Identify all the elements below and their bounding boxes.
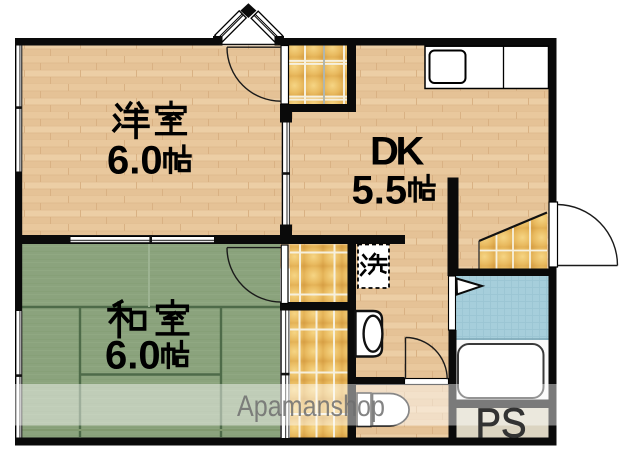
svg-text:6.0: 6.0 bbox=[107, 139, 163, 183]
svg-text:PS: PS bbox=[476, 399, 527, 446]
svg-text:Apamanshop: Apamanshop bbox=[237, 390, 385, 423]
svg-text:6.0: 6.0 bbox=[105, 334, 161, 378]
svg-text:K: K bbox=[396, 130, 425, 174]
svg-text:5.5: 5.5 bbox=[352, 169, 408, 213]
